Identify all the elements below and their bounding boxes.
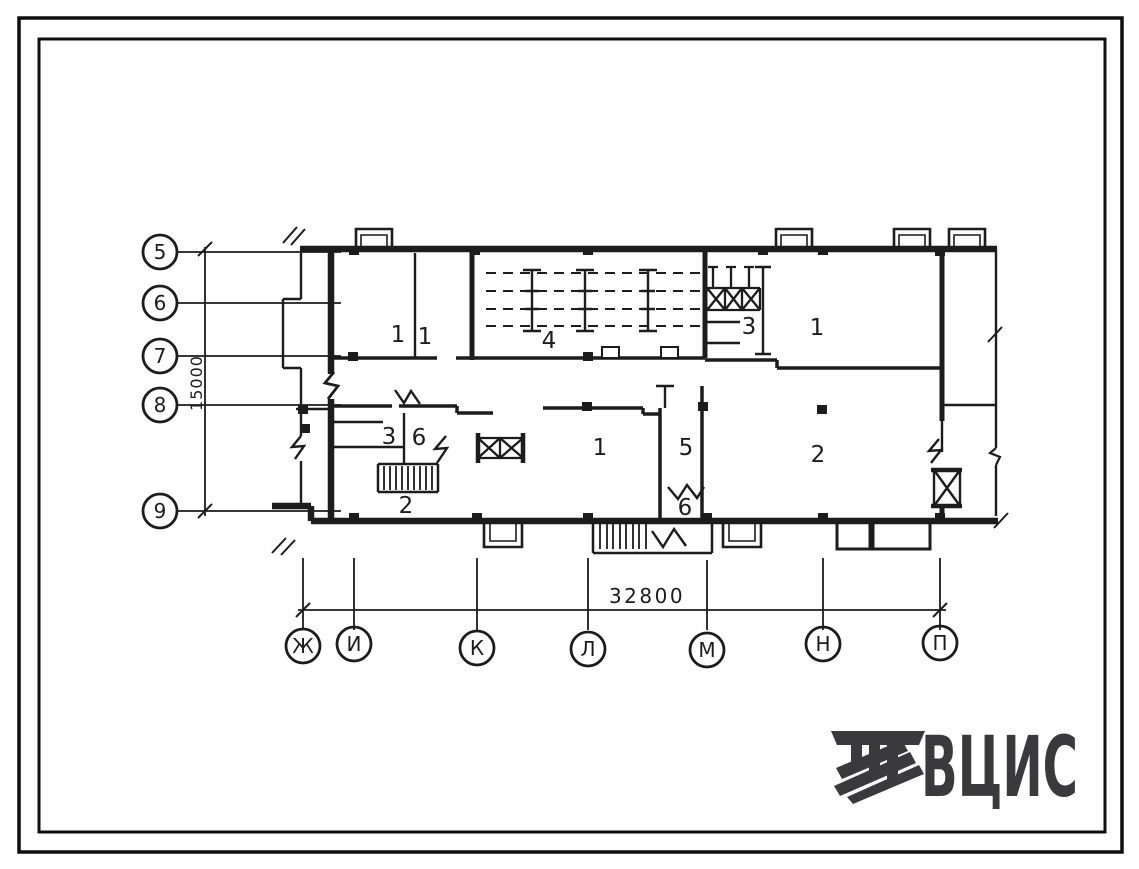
break-mark <box>395 390 420 404</box>
axis-label: П <box>932 631 947 655</box>
axis-label: 5 <box>154 240 167 264</box>
rack-symbols <box>486 270 700 331</box>
axis-circle-7: 7 <box>143 339 177 373</box>
staircase-external <box>593 521 712 553</box>
window-outer <box>484 521 761 547</box>
room-label: 1 <box>593 435 608 461</box>
exterior-wall <box>272 249 998 521</box>
room-label: 1 <box>810 315 825 341</box>
axis-label: 7 <box>154 344 167 368</box>
room-label: 3 <box>382 424 397 450</box>
break-mark <box>325 372 338 399</box>
axis-circle-6: 6 <box>143 286 177 320</box>
inner-frame <box>39 39 1105 832</box>
break-mark <box>929 439 941 463</box>
bearing-wall <box>472 252 942 521</box>
room-label: 2 <box>811 442 826 468</box>
room-label: 1 <box>391 322 406 348</box>
vcis-logo-text: ВЦИС <box>921 718 1078 816</box>
stair-treads <box>600 524 646 549</box>
room-labels: 1 1 4 3 1 3 6 2 1 5 6 2 <box>382 314 826 521</box>
crosshatch-block <box>478 433 523 463</box>
axis-label: Л <box>580 637 595 661</box>
crosshatch-lines <box>478 438 523 458</box>
room-label: 3 <box>742 314 757 340</box>
rack-posts <box>523 270 657 331</box>
vertical-axis-group: 5 6 7 8 9 15000 <box>143 235 341 528</box>
window-bays-bottom <box>484 521 930 549</box>
hoist-cross <box>934 470 960 506</box>
room-label: 6 <box>412 425 427 451</box>
axis-label: 8 <box>154 393 167 417</box>
room-label: 4 <box>542 328 557 354</box>
axis-label: Н <box>815 632 830 656</box>
stair-treads <box>384 466 432 490</box>
horizontal-dimension-label: 32800 <box>609 584 685 608</box>
room-label: 1 <box>418 324 433 350</box>
wall-junction-ticks <box>298 246 945 522</box>
vcis-logo: ВЦИС <box>831 718 1078 816</box>
break-mark <box>292 436 304 459</box>
axis-circle-p: П <box>923 626 957 660</box>
stair-outline <box>593 521 712 553</box>
room-label: 5 <box>679 435 694 461</box>
axis-label: 6 <box>154 291 167 315</box>
crosshatch-band <box>707 267 760 310</box>
axis-label: Ж <box>292 634 314 658</box>
break-mark <box>652 529 686 547</box>
axis-circle-m: М <box>690 633 724 667</box>
staircase-internal <box>378 464 438 492</box>
axis-circle-i: И <box>337 627 371 661</box>
axis-circle-zh: Ж <box>286 629 320 663</box>
crosshatch-lines <box>707 267 760 310</box>
window-outer <box>837 521 930 549</box>
axis-circle-9: 9 <box>143 494 177 528</box>
cut-slashes <box>272 227 1008 555</box>
rack-dashed-lines <box>486 273 700 326</box>
floor-plan-drawing: 5 6 7 8 9 15000 Ж И <box>0 0 1139 869</box>
plan-walls <box>272 249 998 521</box>
break-mark <box>435 436 447 463</box>
hoist-symbol <box>931 470 962 506</box>
axis-circle-5: 5 <box>143 235 177 269</box>
axis-label: 9 <box>154 499 167 523</box>
vertical-dimension-label: 15000 <box>187 355 206 411</box>
room-label: 2 <box>399 493 414 519</box>
blueprint-page: 5 6 7 8 9 15000 Ж И <box>0 0 1139 869</box>
axis-label: И <box>347 632 362 656</box>
break-marks <box>272 227 1008 555</box>
axis-circle-l: Л <box>571 632 605 666</box>
horizontal-axis-group: Ж И К Л М Н П 32800 <box>286 558 957 667</box>
room-label: 6 <box>678 495 693 521</box>
axis-circle-n: Н <box>806 627 840 661</box>
axis-label: К <box>470 636 484 660</box>
axis-label: М <box>698 638 715 662</box>
door-frame <box>602 347 619 358</box>
break-mark <box>990 448 1000 465</box>
axis-circle-k: К <box>460 631 494 665</box>
vcis-logo-icon <box>831 731 925 804</box>
door-frame <box>661 347 678 358</box>
axis-circle-8: 8 <box>143 388 177 422</box>
